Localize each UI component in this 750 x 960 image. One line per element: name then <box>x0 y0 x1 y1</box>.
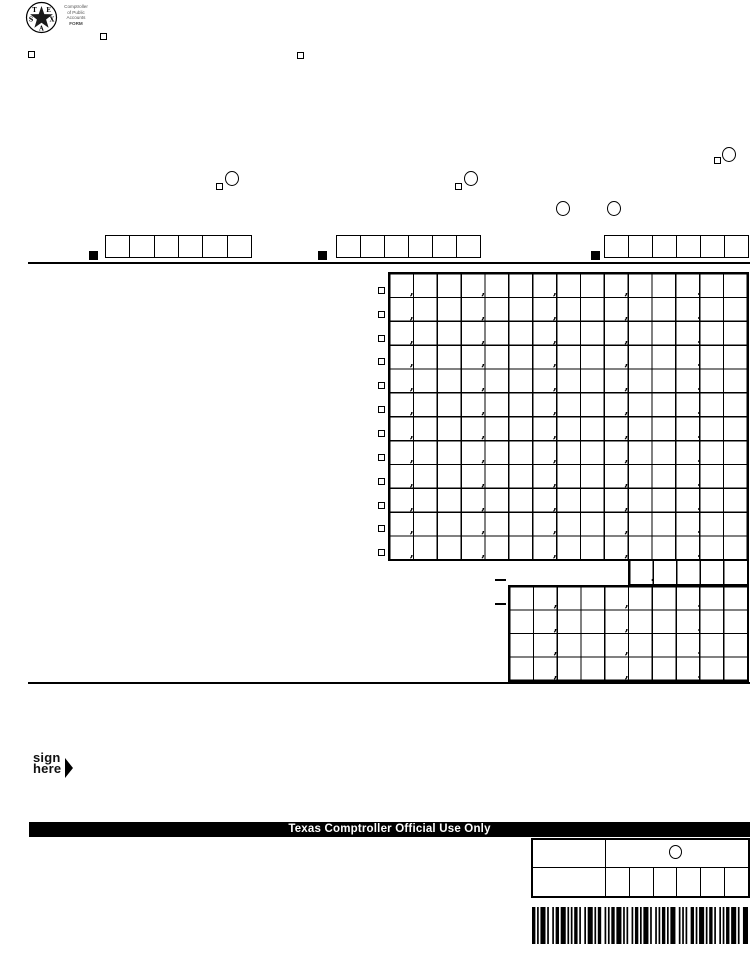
comma-separator: , <box>553 334 557 345</box>
comma-separator: , <box>554 622 558 633</box>
entry-box-cell[interactable] <box>676 236 700 257</box>
comma-separator: , <box>625 429 629 440</box>
entry-box-cell[interactable] <box>456 236 480 257</box>
logo-org-text: Comptroller of Public Accounts FORM <box>58 4 94 26</box>
comma-separator: , <box>410 429 414 440</box>
decimal-point: . <box>651 572 655 583</box>
row-select-checkbox[interactable] <box>378 382 385 389</box>
decimal-point: . <box>697 429 701 440</box>
svg-text:X: X <box>50 17 55 24</box>
comma-separator: , <box>625 622 629 633</box>
comma-separator: , <box>553 477 557 488</box>
comma-separator: , <box>553 501 557 512</box>
fill-bubble[interactable] <box>607 201 621 216</box>
row-select-checkbox[interactable] <box>378 287 385 294</box>
comma-separator: , <box>553 357 557 368</box>
field-marker-checkbox[interactable] <box>216 183 223 190</box>
row-select-checkbox[interactable] <box>378 311 385 318</box>
comma-separator: , <box>481 501 485 512</box>
decimal-point: . <box>697 645 701 656</box>
entry-box-cell[interactable] <box>408 236 432 257</box>
rate-entry-boxes[interactable]: . <box>628 560 749 585</box>
comma-separator: , <box>410 453 414 464</box>
field-marker-checkbox[interactable] <box>455 183 462 190</box>
official-use-bar: Texas Comptroller Official Use Only <box>29 822 750 837</box>
official-use-cell <box>533 868 606 896</box>
decimal-point: . <box>697 524 701 535</box>
entry-box-cell[interactable] <box>129 236 153 257</box>
comma-separator: , <box>625 669 629 680</box>
barcode <box>532 907 748 944</box>
comma-separator: , <box>481 548 485 559</box>
amount-entry-grid[interactable]: ,,,,.,,,,.,,,,.,,,,.,,,,.,,,,.,,,,.,,,,.… <box>388 272 749 561</box>
comma-separator: , <box>553 429 557 440</box>
entry-box-cell[interactable] <box>628 236 652 257</box>
official-use-cell <box>606 840 748 868</box>
entry-box-cell[interactable] <box>652 236 676 257</box>
entry-box-cell[interactable] <box>337 236 360 257</box>
comma-separator: , <box>481 310 485 321</box>
entry-boxes-row-1[interactable] <box>105 235 252 258</box>
decimal-point: . <box>697 622 701 633</box>
svg-text:E: E <box>46 7 51 14</box>
comma-separator: , <box>481 357 485 368</box>
comma-separator: , <box>481 429 485 440</box>
svg-text:A: A <box>38 26 44 33</box>
comma-separator: , <box>625 598 629 609</box>
decimal-point: . <box>697 598 701 609</box>
row-select-checkbox[interactable] <box>378 502 385 509</box>
comma-separator: , <box>481 286 485 297</box>
comma-separator: , <box>410 405 414 416</box>
decimal-point: . <box>697 453 701 464</box>
entry-box-cell[interactable] <box>202 236 226 257</box>
entry-box-cell[interactable] <box>700 236 724 257</box>
entry-box-cell[interactable] <box>227 236 251 257</box>
comma-separator: , <box>410 477 414 488</box>
field-marker-checkbox[interactable] <box>100 33 107 40</box>
section-divider-line <box>28 682 750 684</box>
entry-box-cell[interactable] <box>605 236 628 257</box>
fill-bubble[interactable] <box>556 201 570 216</box>
entry-box-cell[interactable] <box>432 236 456 257</box>
row-select-checkbox[interactable] <box>378 335 385 342</box>
comma-separator: , <box>410 310 414 321</box>
decimal-point: . <box>697 501 701 512</box>
svg-text:S: S <box>29 17 33 24</box>
fill-bubble[interactable] <box>722 147 736 162</box>
comma-separator: , <box>410 334 414 345</box>
comma-separator: , <box>625 501 629 512</box>
row-select-checkbox[interactable] <box>378 454 385 461</box>
comma-separator: , <box>625 381 629 392</box>
entry-row-marker <box>89 251 98 260</box>
entry-row-marker <box>318 251 327 260</box>
row-select-checkbox[interactable] <box>378 406 385 413</box>
comma-separator: , <box>410 548 414 559</box>
row-select-checkbox[interactable] <box>378 549 385 556</box>
comma-separator: , <box>553 453 557 464</box>
comma-separator: , <box>625 357 629 368</box>
decimal-point: . <box>697 286 701 297</box>
entry-box-cell[interactable] <box>178 236 202 257</box>
comma-separator: , <box>553 548 557 559</box>
field-marker-checkbox[interactable] <box>297 52 304 59</box>
row-select-checkbox[interactable] <box>378 430 385 437</box>
fill-bubble[interactable] <box>464 171 478 186</box>
decimal-point: . <box>697 405 701 416</box>
official-use-digit-cells <box>606 868 748 896</box>
comma-separator: , <box>625 453 629 464</box>
entry-box-cell[interactable] <box>154 236 178 257</box>
official-use-bubble <box>669 845 682 859</box>
minus-sign <box>495 603 506 605</box>
svg-text:T: T <box>32 7 37 14</box>
decimal-point: . <box>697 357 701 368</box>
entry-boxes-row-3[interactable] <box>604 235 749 258</box>
minus-sign <box>495 579 506 581</box>
comma-separator: , <box>625 645 629 656</box>
comma-separator: , <box>481 453 485 464</box>
comma-separator: , <box>481 524 485 535</box>
comma-separator: , <box>410 286 414 297</box>
comma-separator: , <box>481 477 485 488</box>
entry-box-cell[interactable] <box>360 236 384 257</box>
comma-separator: , <box>625 310 629 321</box>
tax-form-page: T E X A S Comptroller of Public Accounts… <box>0 0 750 960</box>
field-marker-checkbox[interactable] <box>28 51 35 58</box>
comma-separator: , <box>554 669 558 680</box>
sign-here-arrow-icon <box>65 758 73 778</box>
comma-separator: , <box>625 334 629 345</box>
comma-separator: , <box>481 405 485 416</box>
section-divider-line <box>28 262 750 264</box>
official-use-cell <box>533 840 606 868</box>
decimal-point: . <box>697 334 701 345</box>
comma-separator: , <box>410 524 414 535</box>
sign-here-label: sign here <box>33 753 61 774</box>
comma-separator: , <box>553 286 557 297</box>
entry-box-cell[interactable] <box>106 236 129 257</box>
comma-separator: , <box>554 598 558 609</box>
decimal-point: . <box>697 669 701 680</box>
comma-separator: , <box>625 477 629 488</box>
comma-separator: , <box>410 357 414 368</box>
comma-separator: , <box>481 381 485 392</box>
comma-separator: , <box>553 381 557 392</box>
summary-amount-grid[interactable]: ,,.,,.,,.,,. <box>508 585 749 682</box>
decimal-point: . <box>697 310 701 321</box>
texas-star-logo-icon: T E X A S <box>25 1 58 34</box>
entry-box-cell[interactable] <box>384 236 408 257</box>
entry-box-cell[interactable] <box>724 236 748 257</box>
logo-org-line: FORM <box>58 21 94 27</box>
comma-separator: , <box>625 548 629 559</box>
comma-separator: , <box>410 381 414 392</box>
decimal-point: . <box>697 548 701 559</box>
field-marker-checkbox[interactable] <box>714 157 721 164</box>
entry-boxes-row-2[interactable] <box>336 235 481 258</box>
comma-separator: , <box>554 645 558 656</box>
comma-separator: , <box>625 286 629 297</box>
row-select-checkbox[interactable] <box>378 358 385 365</box>
decimal-point: . <box>697 477 701 488</box>
row-select-checkbox[interactable] <box>378 525 385 532</box>
comma-separator: , <box>553 405 557 416</box>
comma-separator: , <box>625 405 629 416</box>
comma-separator: , <box>553 310 557 321</box>
row-select-checkbox[interactable] <box>378 478 385 485</box>
entry-row-marker <box>591 251 600 260</box>
official-use-table <box>531 838 750 898</box>
comma-separator: , <box>553 524 557 535</box>
comma-separator: , <box>410 501 414 512</box>
decimal-point: . <box>697 381 701 392</box>
comma-separator: , <box>481 334 485 345</box>
comma-separator: , <box>625 524 629 535</box>
fill-bubble[interactable] <box>225 171 239 186</box>
